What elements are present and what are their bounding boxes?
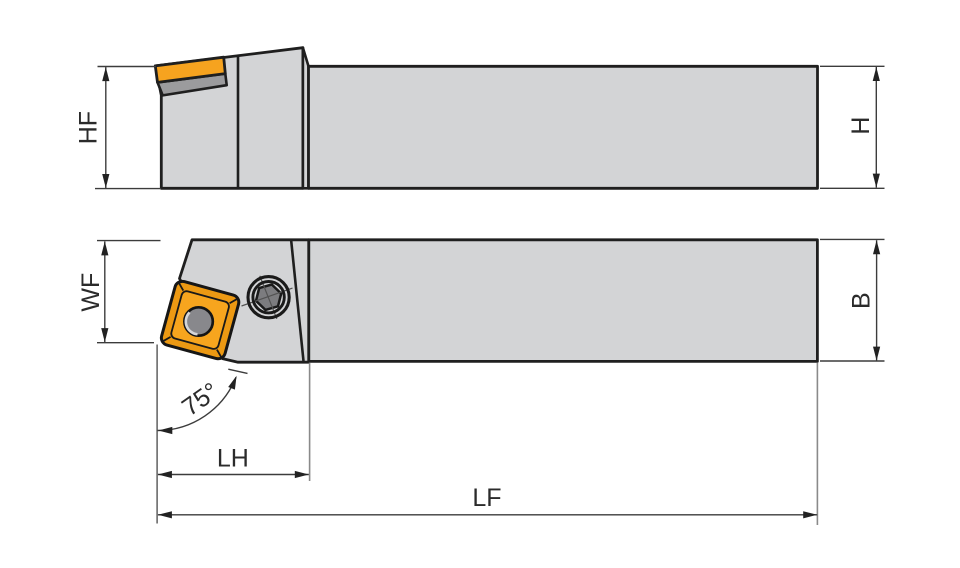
svg-text:HF: HF [75, 111, 103, 144]
svg-text:75°: 75° [177, 377, 224, 422]
svg-text:LF: LF [472, 484, 501, 512]
svg-text:B: B [848, 292, 876, 309]
svg-text:LH: LH [217, 445, 249, 473]
svg-text:H: H [847, 117, 875, 135]
svg-text:WF: WF [77, 273, 105, 312]
